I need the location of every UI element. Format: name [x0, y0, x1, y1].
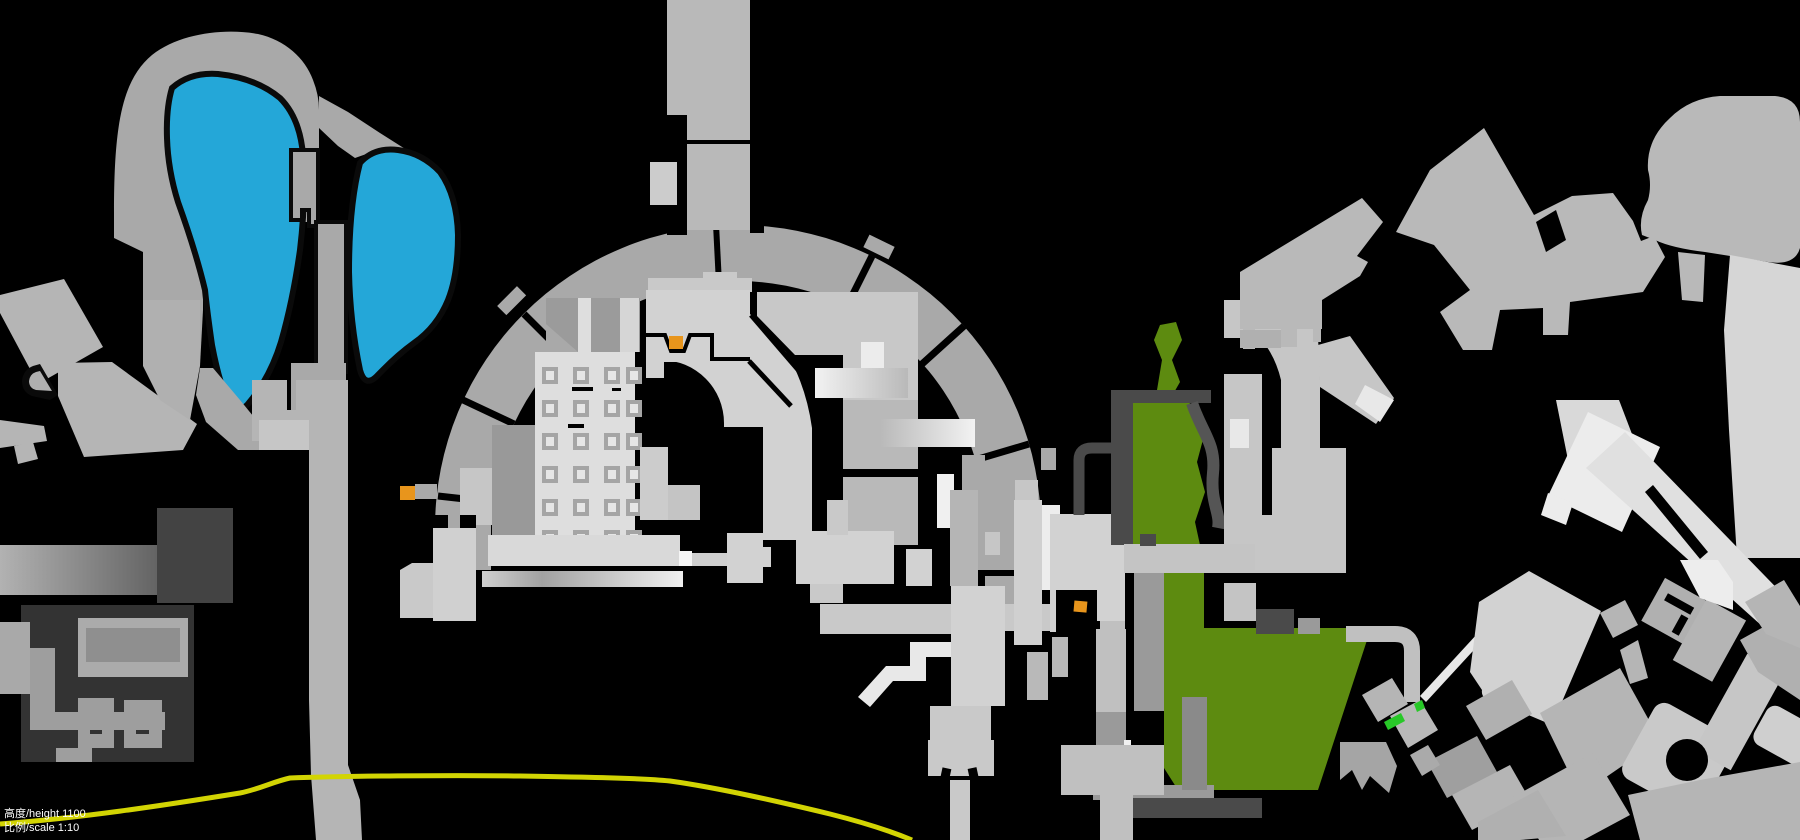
svg-text:高度/height 1100: 高度/height 1100: [4, 806, 86, 820]
svg-text:比例/scale 1:10: 比例/scale 1:10: [4, 820, 79, 834]
